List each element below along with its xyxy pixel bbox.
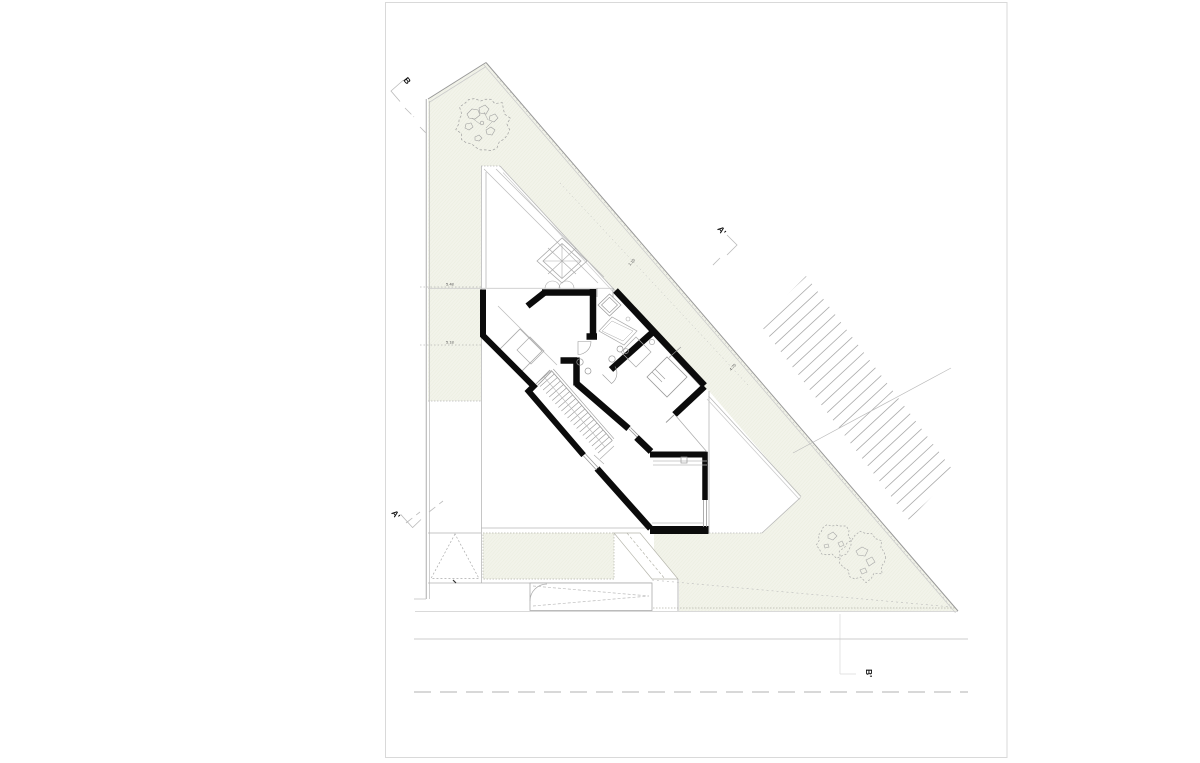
svg-text:B': B' xyxy=(864,669,874,677)
svg-text:5.18: 5.18 xyxy=(446,340,455,345)
svg-text:5.48: 5.48 xyxy=(446,282,455,287)
